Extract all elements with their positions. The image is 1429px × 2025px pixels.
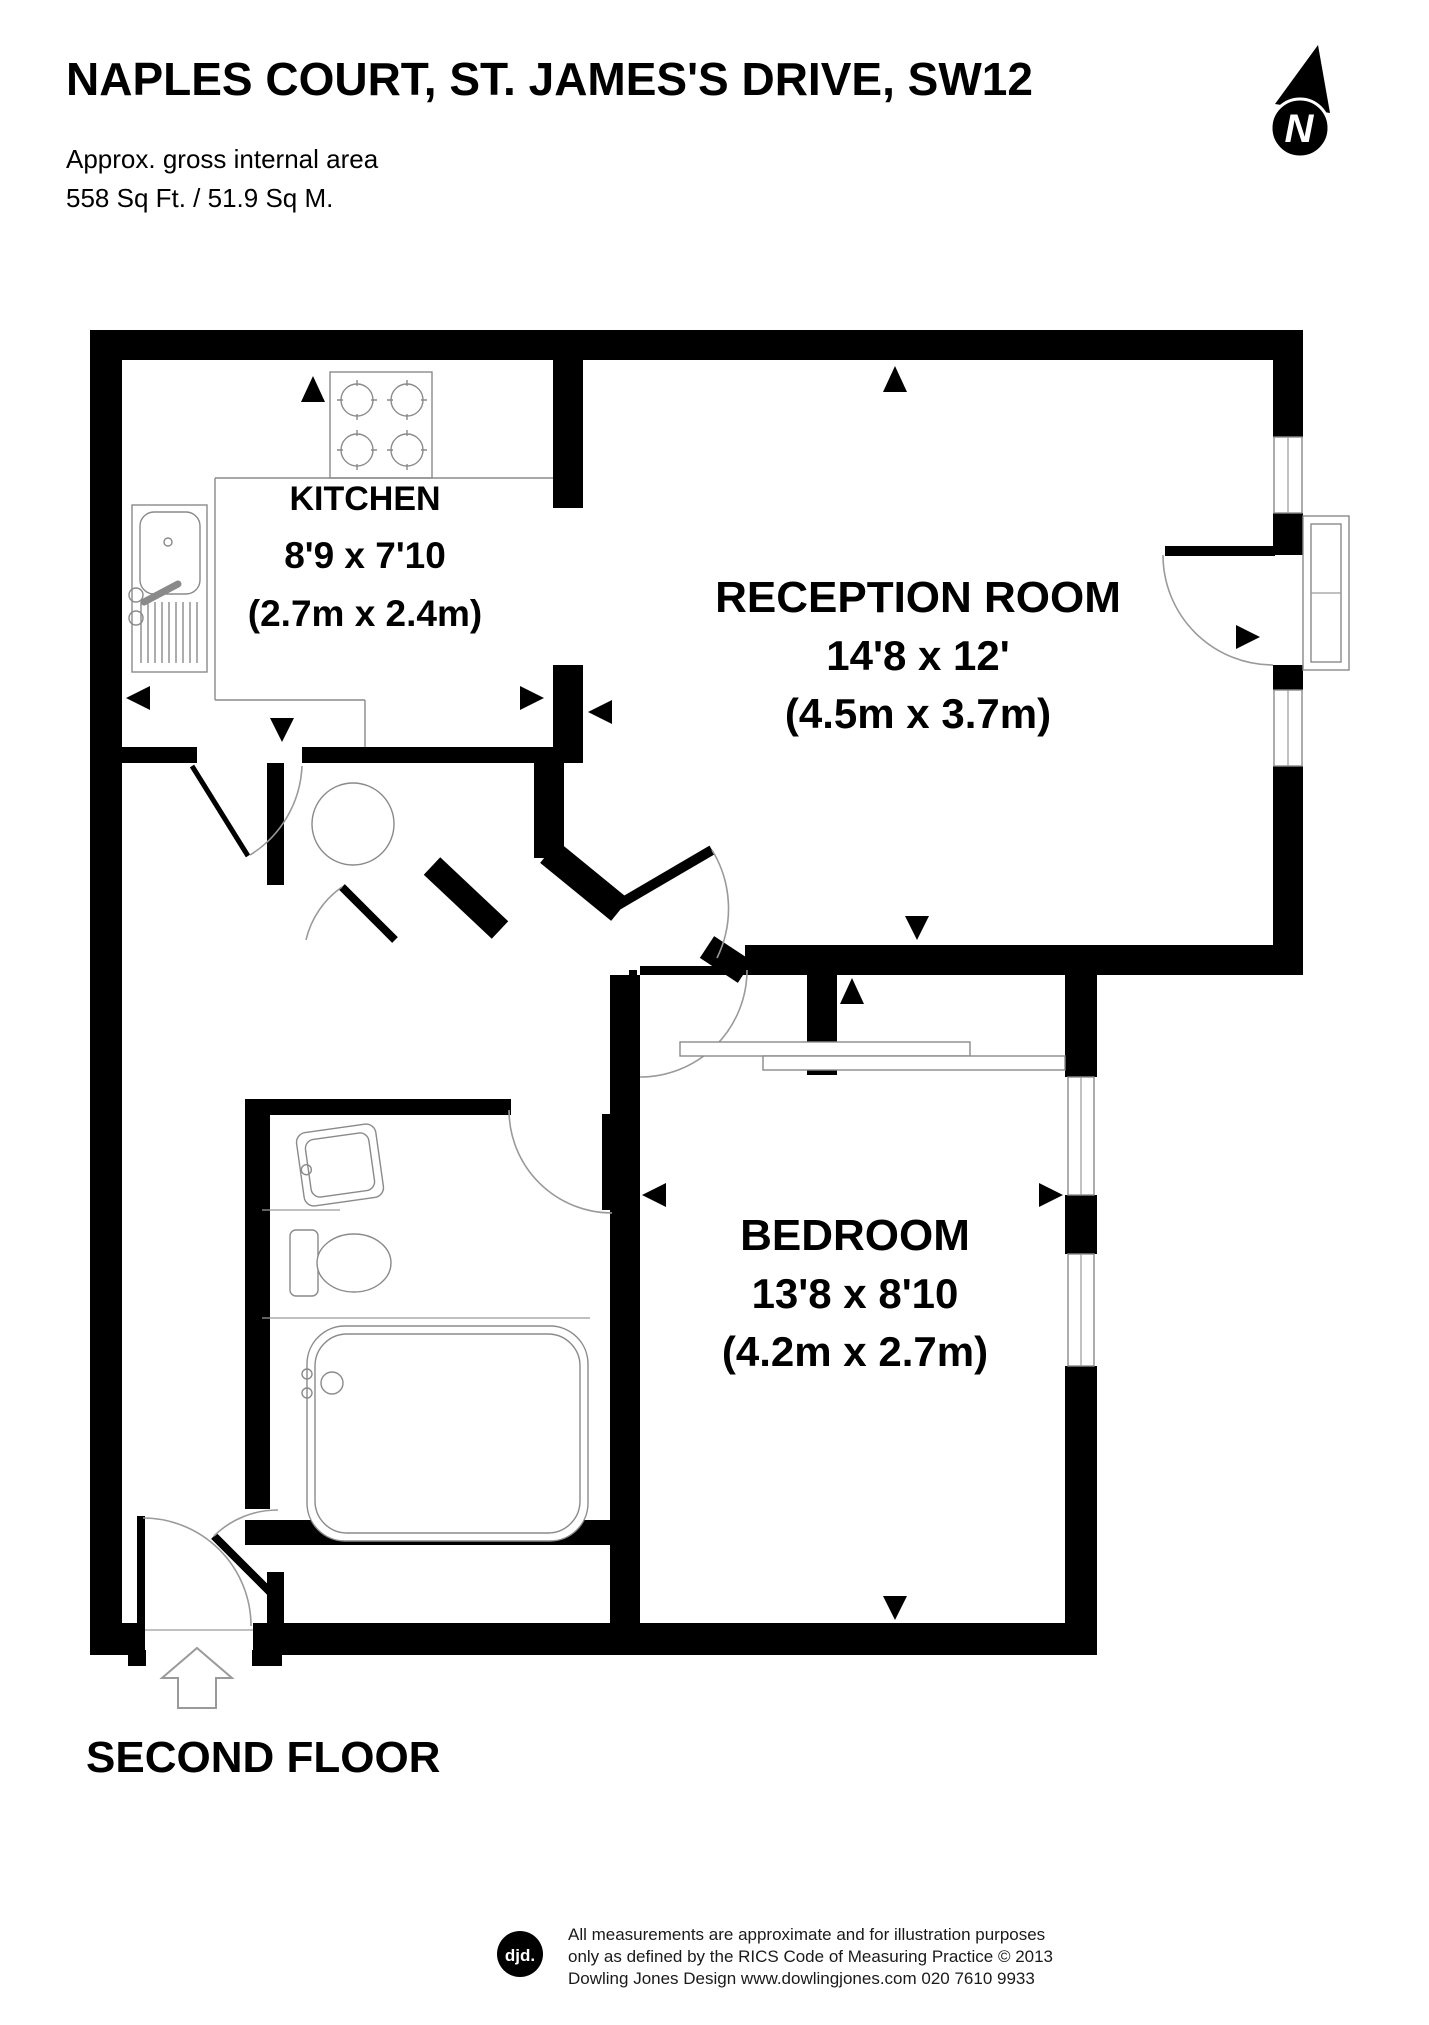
footer-line-3: Dowling Jones Design www.dowlingjones.co…: [568, 1969, 1035, 1988]
bedroom-metric: (4.2m x 2.7m): [722, 1328, 988, 1375]
footer-line-1: All measurements are approximate and for…: [568, 1925, 1045, 1944]
bedroom-window-lower: [1068, 1254, 1094, 1366]
kitchen-name: KITCHEN: [289, 480, 440, 518]
floorplan-canvas: NAPLES COURT, ST. JAMES'S DRIVE, SW12 Ap…: [0, 0, 1429, 2025]
reception-metric: (4.5m x 3.7m): [785, 690, 1051, 737]
djd-logo-text: djd.: [505, 1946, 535, 1965]
lobby-arrow-up-icon: [840, 978, 864, 1004]
bedroom-window-upper: [1068, 1077, 1094, 1195]
reception-arrow-up-icon: [883, 366, 907, 392]
floor-label: SECOND FLOOR: [86, 1733, 440, 1782]
hob-icon: [330, 372, 432, 478]
floorplan-page: NAPLES COURT, ST. JAMES'S DRIVE, SW12 Ap…: [0, 0, 1429, 2025]
area-value: 558 Sq Ft. / 51.9 Sq M.: [66, 183, 333, 213]
north-compass-icon: N: [1271, 45, 1330, 157]
bedroom-arrow-left-icon: [642, 1183, 666, 1207]
bedroom-imperial: 13'8 x 8'10: [752, 1270, 959, 1317]
walls: [90, 330, 1303, 1666]
bedroom-name: BEDROOM: [740, 1211, 970, 1260]
wardrobe-sliding-doors: [680, 1042, 1065, 1070]
toilet-icon: [290, 1230, 391, 1296]
bedroom-label: BEDROOM 13'8 x 8'10 (4.2m x 2.7m): [722, 1211, 988, 1375]
balcony-door: [1163, 546, 1275, 665]
kitchen-arrow-left-icon: [126, 686, 150, 710]
area-label: Approx. gross internal area: [66, 144, 379, 174]
bathroom-door: [509, 1110, 612, 1213]
entrance-door: [137, 1516, 253, 1630]
kitchen-imperial: 8'9 x 7'10: [284, 535, 446, 576]
north-label: N: [1285, 107, 1315, 151]
kitchen-label: KITCHEN 8'9 x 7'10 (2.7m x 2.4m): [248, 480, 482, 634]
kitchen-arrow-down-icon: [270, 718, 294, 742]
basin-icon: [295, 1123, 385, 1207]
balcony-rail: [1303, 516, 1349, 670]
reception-window-lower: [1274, 690, 1302, 766]
page-title: NAPLES COURT, ST. JAMES'S DRIVE, SW12: [66, 53, 1033, 105]
footer: djd. All measurements are approximate an…: [497, 1925, 1053, 1988]
closet-door: [192, 766, 302, 856]
footer-line-2: only as defined by the RICS Code of Meas…: [568, 1947, 1053, 1966]
entrance-arrow-icon: [162, 1648, 232, 1708]
kitchen-arrow-up-icon: [301, 376, 325, 402]
reception-imperial: 14'8 x 12': [826, 632, 1009, 679]
kitchen-metric: (2.7m x 2.4m): [248, 593, 482, 634]
kitchen-arrow-right-icon: [520, 686, 544, 710]
bathtub-icon: [302, 1326, 588, 1541]
reception-arrow-right-icon: [1236, 625, 1260, 649]
kitchen-sink-icon: [129, 505, 207, 672]
kitchen-door-arrow-left-icon: [588, 700, 612, 724]
reception-label: RECEPTION ROOM 14'8 x 12' (4.5m x 3.7m): [715, 573, 1121, 737]
wc-door: [306, 887, 395, 940]
bedroom-arrow-down-icon: [883, 1596, 907, 1620]
cylinder-tank-icon: [312, 783, 394, 865]
reception-name: RECEPTION ROOM: [715, 573, 1121, 622]
bedroom-arrow-right-icon: [1039, 1183, 1063, 1207]
reception-arrow-down-icon: [905, 916, 929, 940]
bedroom-door: [629, 970, 747, 1077]
reception-window-upper: [1274, 437, 1302, 513]
